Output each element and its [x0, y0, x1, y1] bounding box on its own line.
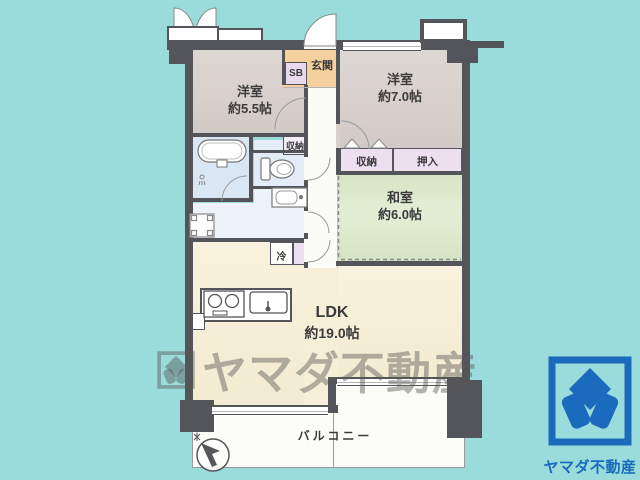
- watermark: ヤマダ不動産: [157, 337, 478, 402]
- label-storage-hall: 収納: [283, 139, 307, 152]
- corridor: [304, 85, 337, 268]
- outer-wall-right: [462, 40, 470, 384]
- door-gap: [336, 124, 340, 148]
- kitchen-side-box: [192, 313, 205, 330]
- bathroom: [193, 137, 250, 200]
- door-gap: [304, 211, 308, 233]
- wall: [338, 171, 462, 175]
- wall: [249, 137, 253, 201]
- room-name: 和室: [338, 190, 462, 207]
- window-bottom-left: [212, 406, 328, 415]
- wall-stub-top-right: [466, 41, 504, 48]
- room-name: 洋室: [338, 72, 462, 89]
- room-name: 洋室: [193, 84, 307, 101]
- brand-name: ヤマダ不動産: [538, 456, 640, 477]
- brand-logo: ヤマダ不動産: [538, 356, 640, 477]
- door-gap: [304, 239, 308, 262]
- washroom: [193, 203, 307, 239]
- pillar-top-right: [447, 48, 478, 63]
- wall: [193, 198, 253, 202]
- window-top: [343, 41, 421, 51]
- label-storage-west2: 収納: [340, 154, 393, 169]
- floorplan-canvas: 洋室 約5.5帖 洋室 約7.0帖 和室 約6.0帖 LDK 約19.0帖 玄関…: [0, 0, 640, 480]
- label-western1: 洋室 約5.5帖: [193, 84, 307, 118]
- label-tatami: 和室 約6.0帖: [338, 190, 462, 224]
- label-entrance: 玄関: [306, 57, 338, 73]
- label-balcony: バルコニー: [265, 427, 405, 444]
- wall: [253, 186, 307, 189]
- wall: [336, 261, 462, 266]
- watermark-logo-icon: [157, 351, 195, 389]
- door-gap: [304, 157, 308, 180]
- pillar-top-left: [169, 44, 189, 64]
- washroom-upper: [254, 189, 307, 203]
- label-western2: 洋室 約7.0帖: [338, 72, 462, 106]
- room-size: 約7.0帖: [338, 89, 462, 106]
- wall: [193, 238, 307, 242]
- pillar-bottom-left: [180, 400, 214, 432]
- room-size: 約5.5帖: [193, 101, 307, 118]
- bay-window: [420, 19, 467, 43]
- label-fridge: 冷: [270, 248, 293, 263]
- entrance-opening: [304, 41, 336, 49]
- watermark-text: ヤマダ不動産: [202, 337, 478, 402]
- yamada-logo-icon: [546, 356, 634, 448]
- room-name: LDK: [272, 303, 392, 324]
- label-shoebox: SB: [285, 68, 307, 79]
- room-size: 約6.0帖: [338, 207, 462, 224]
- label-oshiire: 押入: [393, 154, 462, 169]
